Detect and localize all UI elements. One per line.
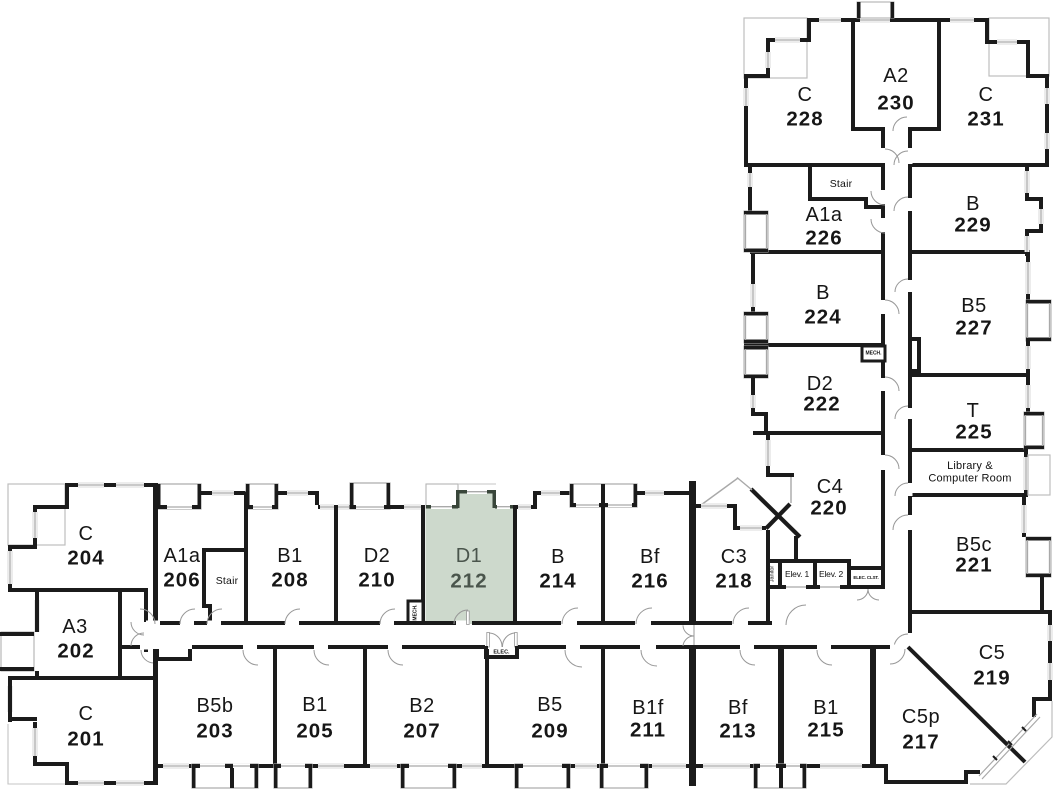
svg-text:209: 209 — [531, 720, 568, 743]
svg-text:212: 212 — [450, 570, 487, 593]
svg-text:215: 215 — [807, 719, 844, 742]
svg-text:230: 230 — [877, 92, 914, 115]
svg-text:T: T — [967, 400, 980, 422]
svg-text:C3: C3 — [721, 546, 748, 568]
svg-text:C: C — [979, 84, 994, 106]
svg-text:B1: B1 — [813, 697, 838, 719]
svg-text:A3: A3 — [62, 616, 87, 638]
svg-text:B5: B5 — [537, 694, 562, 716]
svg-text:B: B — [966, 193, 980, 215]
svg-text:D2: D2 — [364, 545, 391, 567]
svg-text:Bf: Bf — [728, 697, 748, 719]
svg-text:205: 205 — [296, 720, 333, 743]
svg-text:213: 213 — [719, 720, 756, 743]
svg-text:217: 217 — [902, 731, 939, 754]
svg-text:C: C — [79, 703, 94, 725]
svg-text:B5b: B5b — [196, 695, 233, 717]
svg-text:B: B — [551, 546, 565, 568]
svg-text:MECH.: MECH. — [865, 351, 882, 357]
svg-text:Janitor: Janitor — [770, 566, 776, 583]
svg-text:B5: B5 — [961, 295, 986, 317]
svg-text:202: 202 — [57, 640, 94, 663]
svg-text:A2: A2 — [883, 65, 908, 87]
svg-text:203: 203 — [196, 720, 233, 743]
svg-text:204: 204 — [67, 547, 104, 570]
svg-text:Elev. 2: Elev. 2 — [819, 569, 843, 579]
svg-text:222: 222 — [803, 393, 840, 416]
svg-text:C: C — [798, 84, 813, 106]
svg-text:Computer Room: Computer Room — [928, 473, 1011, 485]
svg-text:Library &: Library & — [947, 460, 993, 472]
svg-text:C: C — [79, 523, 94, 545]
svg-text:MECH.: MECH. — [413, 604, 419, 621]
svg-text:210: 210 — [358, 569, 395, 592]
svg-text:226: 226 — [805, 227, 842, 250]
svg-text:C5p: C5p — [902, 706, 940, 728]
svg-text:B1f: B1f — [632, 697, 664, 719]
svg-text:201: 201 — [67, 728, 104, 751]
svg-text:211: 211 — [630, 719, 666, 742]
svg-text:220: 220 — [810, 497, 847, 520]
svg-text:A1a: A1a — [163, 545, 200, 567]
svg-text:Stair: Stair — [216, 575, 239, 587]
svg-text:216: 216 — [631, 570, 668, 593]
svg-text:218: 218 — [715, 570, 752, 593]
svg-text:ELEC.: ELEC. — [493, 650, 510, 656]
svg-text:225: 225 — [955, 421, 992, 444]
svg-text:C4: C4 — [817, 476, 844, 498]
svg-text:229: 229 — [954, 214, 991, 237]
svg-text:B1: B1 — [277, 545, 302, 567]
svg-text:207: 207 — [403, 720, 440, 743]
svg-text:228: 228 — [786, 108, 823, 131]
svg-text:B2: B2 — [409, 695, 434, 717]
svg-text:Stair: Stair — [830, 178, 853, 190]
svg-text:227: 227 — [955, 317, 992, 340]
svg-text:ELEC. CLST.: ELEC. CLST. — [853, 575, 878, 580]
svg-text:208: 208 — [271, 569, 308, 592]
svg-text:B: B — [816, 282, 830, 304]
svg-text:231: 231 — [967, 108, 1004, 131]
svg-text:Bf: Bf — [640, 546, 660, 568]
svg-text:A1a: A1a — [805, 204, 842, 226]
svg-text:D1: D1 — [456, 545, 483, 567]
svg-text:B1: B1 — [302, 694, 327, 716]
svg-text:Elev. 1: Elev. 1 — [785, 569, 809, 579]
svg-text:219: 219 — [973, 667, 1010, 690]
svg-text:224: 224 — [804, 306, 841, 329]
svg-text:C5: C5 — [979, 642, 1006, 664]
svg-text:221: 221 — [955, 554, 992, 577]
svg-text:206: 206 — [163, 569, 200, 592]
svg-text:214: 214 — [539, 570, 576, 593]
